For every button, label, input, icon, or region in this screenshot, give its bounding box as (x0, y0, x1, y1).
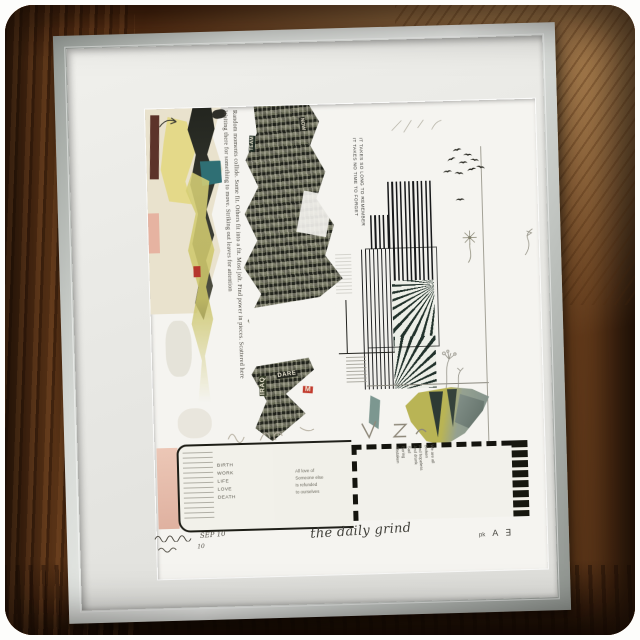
photo-canvas: Random moments collide. Some fit. Others… (0, 0, 640, 640)
monogram-letter-e: ∃ (505, 528, 511, 539)
v-z-marks-icon (354, 416, 435, 446)
art-print: Random moments collide. Some fit. Others… (145, 99, 548, 580)
tiny-paragraph (346, 357, 367, 384)
collage-area: Random moments collide. Some fit. Others… (145, 99, 548, 580)
love-note-line: to ourselves (296, 488, 324, 496)
life-list-line: DEATH (218, 494, 236, 502)
thin-outline-box (365, 246, 440, 348)
faded-blob (165, 320, 193, 377)
edition-inscription: SEP 10 10 (153, 528, 274, 559)
margin-vertical-text: Random moments collide. Some fit. Others… (219, 110, 246, 410)
gray-rock-shape (454, 393, 485, 434)
edition-date: SEP 10 (200, 530, 226, 540)
pencil-scratches-icon (387, 111, 448, 139)
mat-board: Random moments collide. Some fit. Others… (66, 35, 558, 610)
cross-vertical-line (345, 300, 348, 354)
clipping-word: IRAQ (259, 376, 267, 396)
ledger-stamp-block: BIRTH WORK LIFE LOVE DEATH (176, 442, 278, 533)
clipping-letter: M (303, 386, 313, 394)
edition-number: 10 (197, 543, 205, 551)
love-note-block: All love of Someone else is refunded to … (272, 440, 353, 530)
birds-flock-icon (438, 142, 490, 213)
plant-sketch-icon (519, 223, 538, 259)
tiny-paragraph (335, 254, 352, 294)
faded-blob (177, 408, 212, 439)
pencil-squiggle-icon (153, 532, 197, 542)
life-list-text: BIRTH WORK LIFE LOVE DEATH (217, 462, 236, 502)
pink-paper-scrap (148, 213, 160, 253)
memory-vertical-text: IT TAKES SO LONG TO REMEMBER IT TAKES NO… (350, 137, 367, 251)
we-are-stamp-block: We are all Broken And hopeless And drunk… (351, 440, 513, 520)
monogram-letter-a: A (492, 528, 498, 538)
pencil-squiggle-icon (156, 546, 182, 554)
life-list-line: WORK (217, 470, 235, 478)
we-are-text: We are all Broken And hopeless And drunk… (394, 444, 438, 508)
red-fleck (193, 266, 200, 277)
dandelion-icon (456, 228, 483, 265)
ledger-ruled-lines (183, 452, 215, 521)
dashed-strip (511, 440, 529, 516)
love-note-text: All love of Someone else is refunded to … (295, 467, 324, 496)
corner-scribble-icon (157, 114, 183, 133)
clipping-word: TEAM (249, 135, 256, 151)
botanical-flower-icon (435, 347, 468, 392)
photo: Random moments collide. Some fit. Others… (5, 5, 635, 635)
picture-frame: Random moments collide. Some fit. Others… (53, 22, 571, 624)
artist-monogram: pk A ∃ (479, 528, 511, 540)
monogram-initials: pk (479, 532, 486, 538)
